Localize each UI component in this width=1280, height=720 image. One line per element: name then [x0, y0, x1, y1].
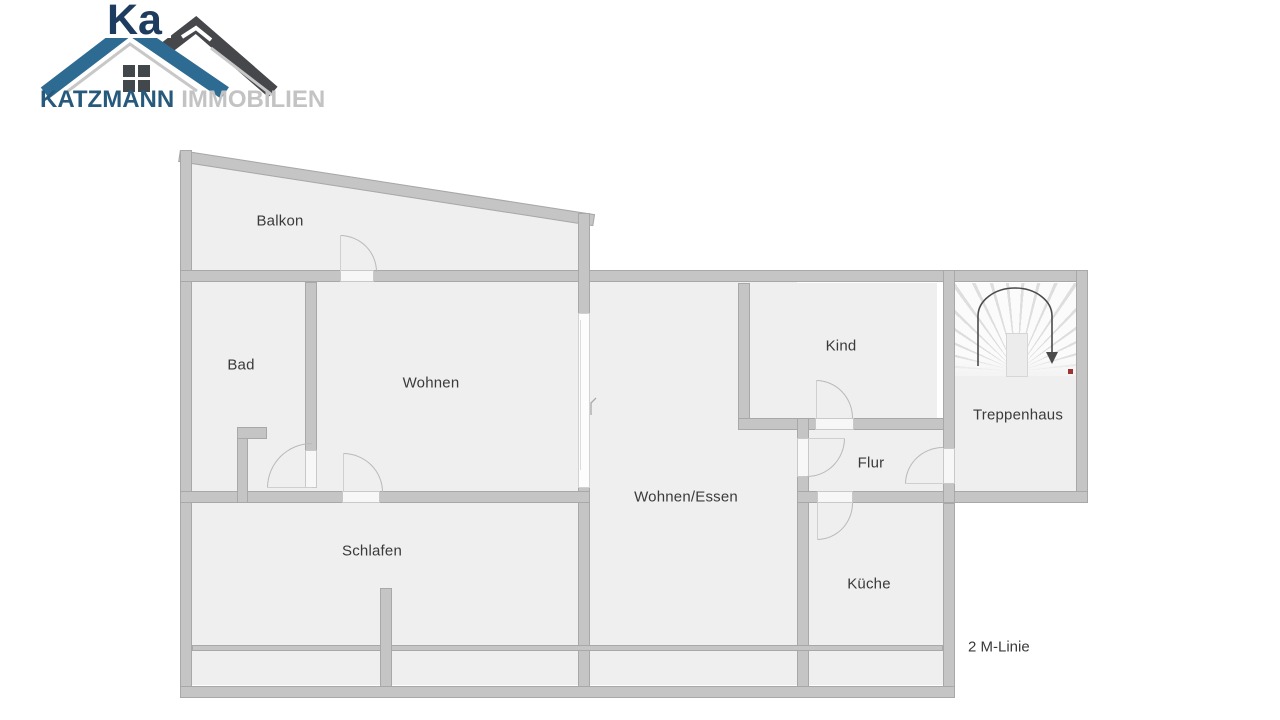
room-label-balkon: Balkon [256, 213, 303, 230]
brand-wordmark: KATZMANNIMMOBILIEN [40, 86, 325, 114]
wall-schlafen-stub [380, 588, 392, 687]
annotation-2m-linie: 2 M-Linie [968, 639, 1030, 656]
wall-kueche-right [943, 503, 955, 697]
brand-suffix: IMMOBILIEN [181, 86, 325, 113]
logo-window-pane [138, 65, 150, 77]
wall-outer-right [1076, 270, 1088, 503]
wall-outer-left [180, 150, 192, 697]
door-opening-schlafen [342, 491, 380, 503]
wall-kind-left [738, 283, 750, 430]
room-label-kind: Kind [826, 338, 857, 355]
room-label-schlafen: Schlafen [342, 543, 402, 560]
room-label-wohnen: Wohnen [403, 375, 460, 392]
wall-2m-line [192, 645, 943, 651]
room-label-wohnen-essen: Wohnen/Essen [634, 489, 738, 506]
logo-window-pane [123, 65, 135, 77]
room-label-treppenhaus: Treppenhaus [973, 407, 1063, 424]
door-opening-treppenhaus [943, 448, 955, 484]
door-leaf-schlafen [343, 453, 344, 492]
door-leaf-treppenhaus [905, 483, 943, 484]
room-bad-wohnen-fill [192, 282, 578, 491]
door-leaf-bad [267, 487, 312, 488]
door-opening-kueche [817, 491, 853, 503]
door-leaf-flur [807, 438, 845, 439]
company-logo: Ka KATZMANNIMMOBILIEN [35, 0, 305, 122]
watermark-text: Ka [107, 0, 162, 45]
wall-outer-bottom [180, 686, 955, 698]
door-leaf-kueche [817, 503, 818, 540]
sliding-leaf-line [580, 320, 581, 470]
room-label-kueche: Küche [847, 576, 891, 593]
floorplan-page: Balkon Bad Wohnen Kind Treppenhaus Flur … [0, 0, 1280, 720]
room-label-bad: Bad [227, 357, 254, 374]
door-leaf-kind [816, 380, 817, 418]
stair-center-post [1006, 333, 1028, 377]
stair-red-marker [1068, 369, 1073, 374]
door-opening-kind [815, 418, 854, 430]
wall-bad-stub-horizontal [237, 427, 267, 439]
brand-name: KATZMANN [40, 86, 174, 113]
door-leaf-balkon [340, 235, 341, 272]
room-label-flur: Flur [858, 455, 885, 472]
